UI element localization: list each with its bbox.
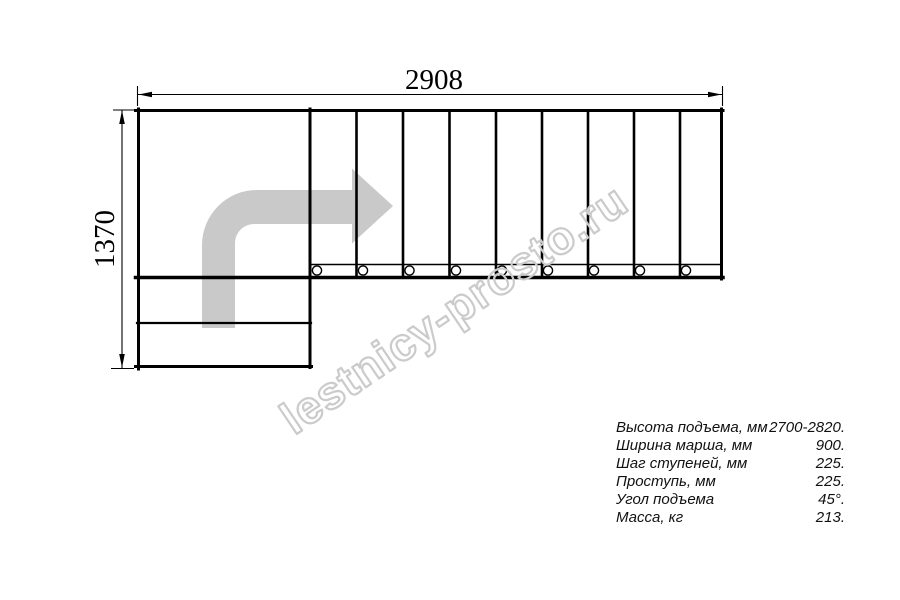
spec-label: Высота подъема, мм [616, 419, 768, 437]
spec-value: 225. [816, 455, 845, 473]
spec-row: Высота подъема, мм 2700-2820. [616, 419, 845, 437]
spec-label: Ширина марша, мм [616, 437, 752, 455]
spec-label: Угол подъема [616, 491, 714, 509]
dimension-top: 2908 [138, 64, 723, 106]
baluster-circle [589, 266, 598, 275]
baluster-circle [312, 266, 321, 275]
staircase-plan-page: 2908 1370 lestnicy-prosto.ru Высота подъ… [0, 0, 900, 600]
baluster-circle [681, 266, 690, 275]
spec-label: Масса, кг [616, 509, 683, 527]
spec-value: 2700-2820. [769, 419, 845, 437]
baluster-circle [358, 266, 367, 275]
dimension-left: 1370 [89, 110, 136, 369]
spec-row: Проступь, мм 225. [616, 473, 845, 491]
spec-value: 213. [816, 509, 845, 527]
dimension-arrowhead [119, 111, 125, 125]
baluster-circle [635, 266, 644, 275]
dimension-arrowhead [708, 92, 722, 98]
spec-row: Шаг ступеней, мм 225. [616, 455, 845, 473]
dimension-arrowhead [119, 354, 125, 368]
spec-label: Шаг ступеней, мм [616, 455, 747, 473]
spec-value: 900. [816, 437, 845, 455]
spec-value: 45°. [818, 491, 845, 509]
baluster-circle [405, 266, 414, 275]
spec-row: Масса, кг 213. [616, 509, 845, 527]
direction-arrow [202, 169, 393, 329]
dimension-arrowhead [139, 92, 153, 98]
dimension-width-label: 2908 [405, 64, 463, 96]
direction-arrow-shape [202, 169, 393, 329]
spec-label: Проступь, мм [616, 473, 716, 491]
dimension-height-label: 1370 [89, 210, 121, 268]
spec-row: Ширина марша, мм 900. [616, 437, 845, 455]
spec-row: Угол подъема 45°. [616, 491, 845, 509]
spec-value: 225. [816, 473, 845, 491]
spec-table: Высота подъема, мм 2700-2820. Ширина мар… [616, 419, 845, 527]
